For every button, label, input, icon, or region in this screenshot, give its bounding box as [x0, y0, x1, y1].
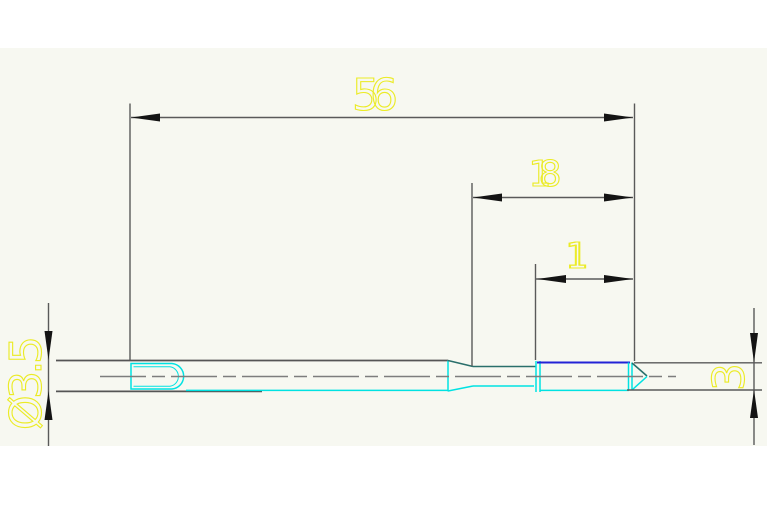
dim-3-arrow-top-icon [750, 333, 758, 363]
dim-11-arrow-right-icon [604, 275, 633, 283]
cad-drawing: 56 18 11 Ø3.5 3 [0, 0, 767, 523]
dim-56-label: 56 [352, 70, 398, 121]
dimensions: 56 18 11 Ø3.5 3 [1, 70, 762, 446]
dim-56-arrow-left-icon [131, 114, 160, 122]
dim-11-arrow-left-icon [537, 275, 566, 283]
tip-bottom-chamfer [632, 377, 647, 391]
dim-18-label: 18 [529, 154, 562, 195]
dim-3-label: 3 [704, 363, 755, 391]
taper-top-edge [448, 361, 473, 367]
taper-bottom-edge [448, 386, 473, 391]
dim-dia35-label: Ø3.5 [1, 336, 52, 430]
dim-11-label: 11 [565, 236, 589, 277]
dim-3-arrow-bottom-icon [750, 390, 758, 419]
dim-18-arrow-right-icon [604, 194, 633, 202]
dim-56-arrow-right-icon [604, 114, 633, 122]
tip-top-chamfer [632, 363, 647, 376]
drawing-svg: 56 18 11 Ø3.5 3 [0, 0, 767, 523]
dim-18-arrow-left-icon [473, 194, 502, 202]
